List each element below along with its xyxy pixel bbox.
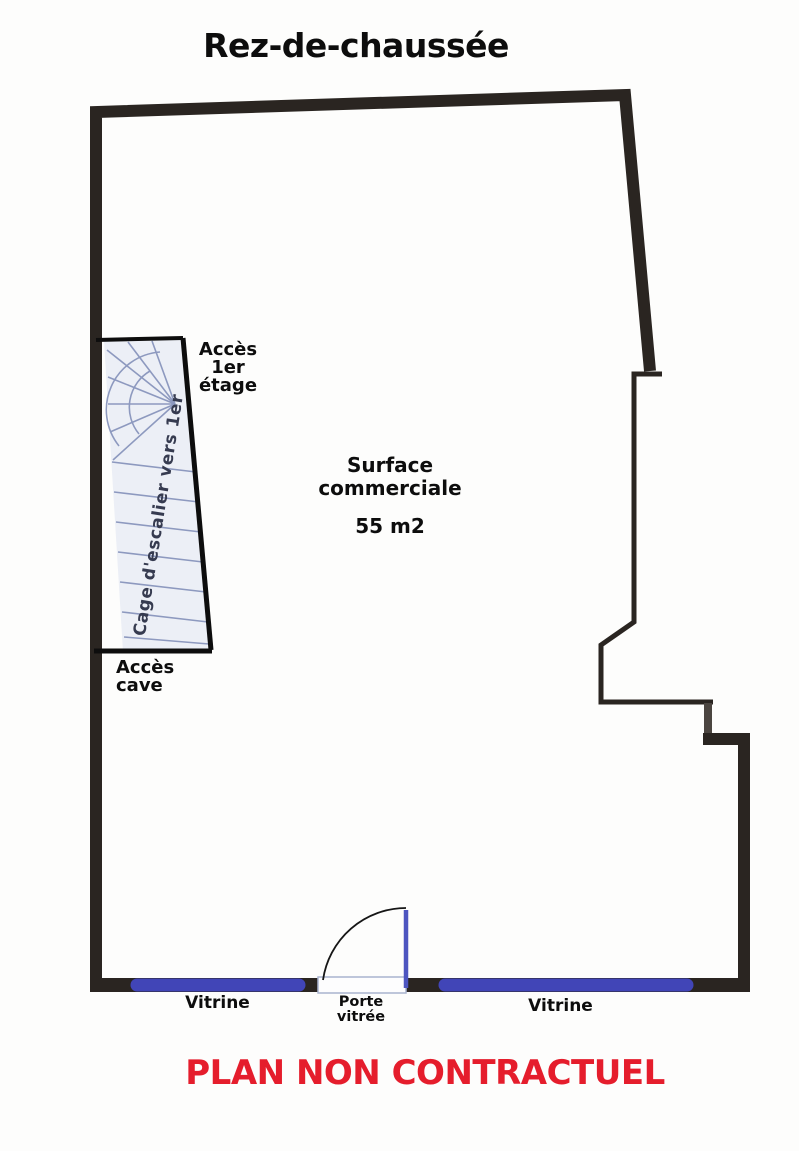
floor-plan-drawing (0, 0, 799, 1151)
surface-line2: commerciale (290, 477, 490, 500)
access-cellar-line2: cave (116, 677, 174, 695)
vitrine-left-label: Vitrine (155, 993, 280, 1013)
disclaimer-text: PLAN NON CONTRACTUEL (105, 1053, 745, 1093)
vitrine-right-label: Vitrine (498, 996, 623, 1016)
right-wall-jog (601, 374, 713, 702)
access-cellar-label: Accès cave (116, 659, 174, 695)
lower-right-wall (703, 739, 744, 992)
access-first-floor-line2: 1er étage (180, 359, 276, 395)
glazed-door-line2: vitrée (310, 1010, 412, 1025)
glazed-door-label: Porte vitrée (310, 995, 412, 1024)
surface-area-value: 55 m2 (290, 515, 490, 538)
stairwell-top-border (96, 338, 183, 340)
page-title: Rez-de-chaussée (56, 26, 656, 65)
glazed-door-line1: Porte (310, 995, 412, 1010)
door-threshold (318, 977, 406, 993)
door-swing-arc (323, 908, 406, 980)
access-first-floor-label: Accès 1er étage (180, 341, 276, 395)
surface-label: Surface commerciale 55 m2 (290, 454, 490, 538)
surface-line1: Surface (290, 454, 490, 477)
